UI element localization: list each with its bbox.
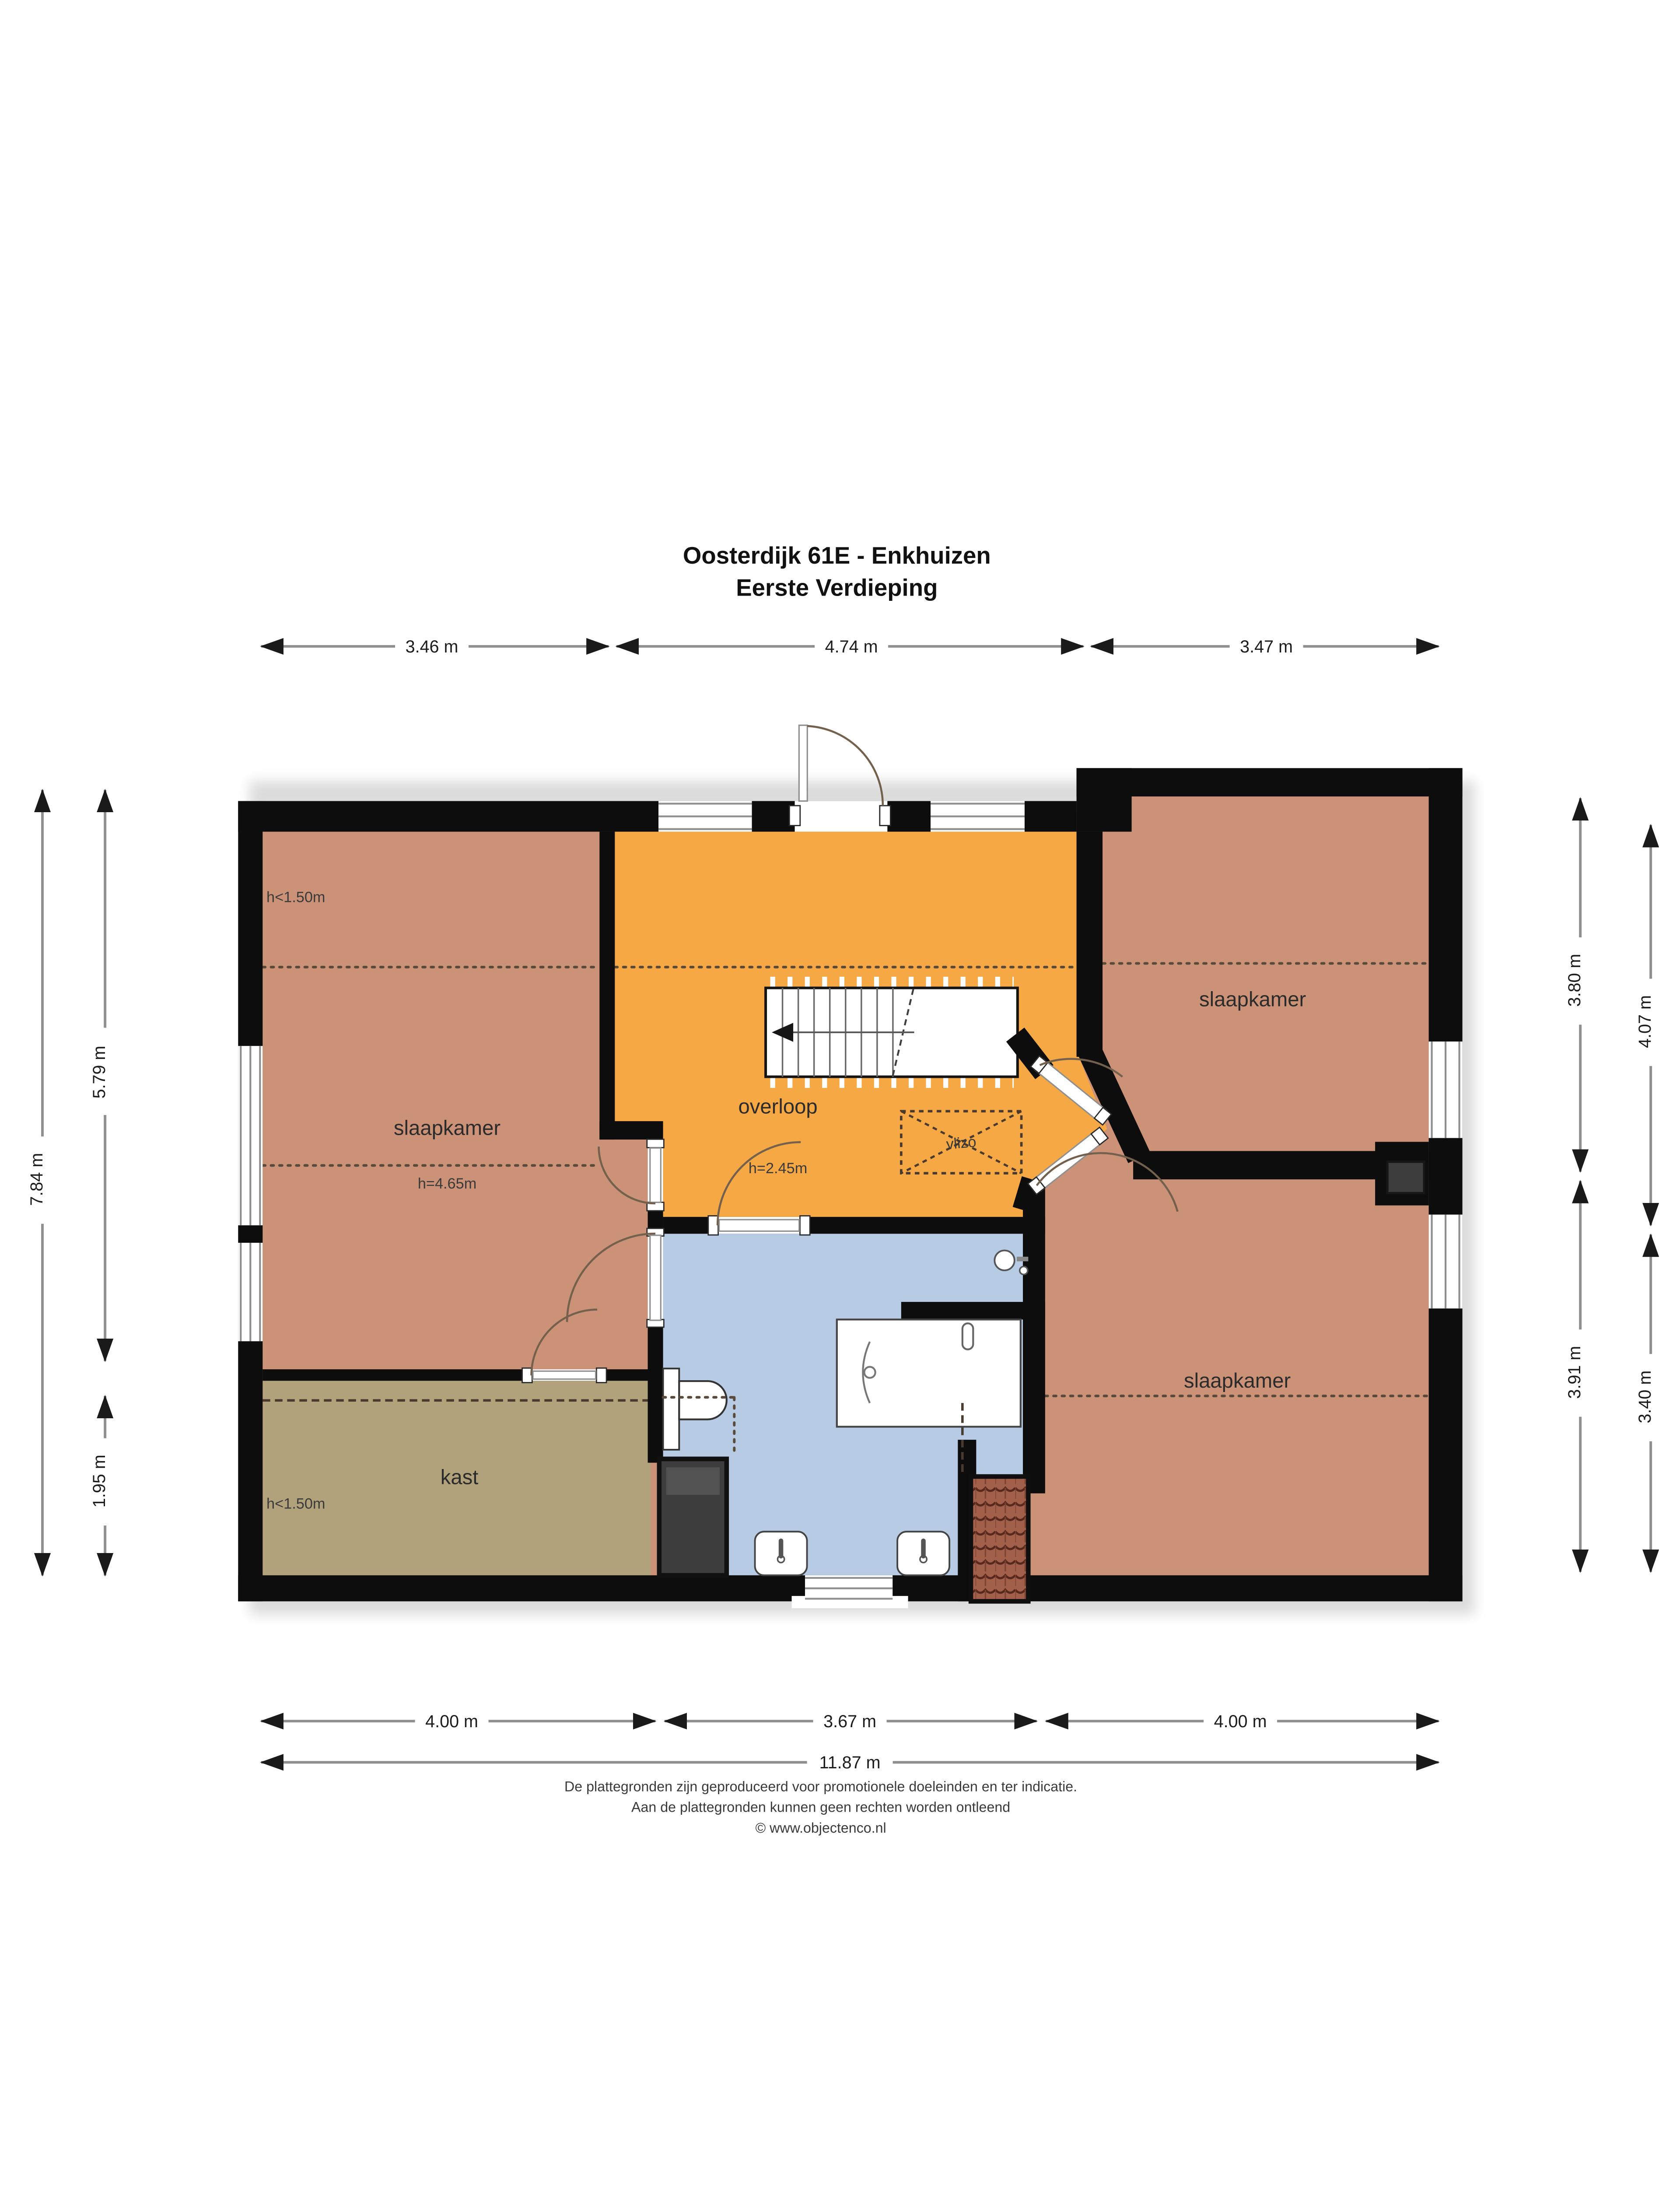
wall-step: [599, 1121, 663, 1140]
dim-bottom-2: 3.67 m: [823, 1712, 876, 1731]
landing-label: overloop: [738, 1095, 817, 1119]
staircase: [766, 982, 1018, 1082]
window-right-2: [1429, 1215, 1463, 1309]
window-top-1: [658, 801, 752, 832]
window-top-2: [931, 801, 1025, 832]
plan-title: Oosterdijk 61E - Enkhuizen Eerste Verdie…: [683, 542, 991, 601]
shaft-inner: [666, 1467, 720, 1495]
window-left-2: [238, 1243, 262, 1341]
wall-top-right: [1077, 768, 1463, 796]
dim-top-3: 3.47 m: [1240, 637, 1293, 656]
dim-bottom-total: 11.87 m: [819, 1753, 881, 1772]
footer-line1: De plattegronden zijn geproduceerd voor …: [564, 1778, 1077, 1794]
landing-height: h=2.45m: [749, 1160, 807, 1177]
dim-bottom-1: 4.00 m: [425, 1712, 478, 1731]
loft-hatch-label: vlizo: [945, 1133, 977, 1153]
bedroom-left-label: slaapkamer: [394, 1117, 500, 1140]
dim-top-1: 3.46 m: [406, 637, 458, 656]
dim-right-outer-2: 3.40 m: [1635, 1371, 1655, 1424]
basin-knob: [1020, 1266, 1028, 1274]
bedroom-left-low: h<1.50m: [266, 889, 325, 906]
flue-box: [1387, 1162, 1424, 1193]
closet-label: kast: [441, 1466, 479, 1489]
basin-faucet: [1017, 1257, 1028, 1262]
dim-left-inner-2: 1.95 m: [90, 1455, 109, 1508]
window-left-1: [238, 1046, 262, 1225]
dim-left-inner-1: 5.79 m: [90, 1046, 109, 1099]
wall-bath-stub: [901, 1302, 1045, 1319]
toilet-tank: [663, 1368, 679, 1450]
bedroom-topright-label: slaapkamer: [1199, 988, 1306, 1011]
toilet-bowl: [679, 1381, 727, 1420]
sink-right: [897, 1532, 949, 1575]
wall-top-jog: [1077, 768, 1132, 831]
dim-top-2: 4.74 m: [825, 637, 878, 656]
dim-right-inner-1: 3.80 m: [1565, 954, 1584, 1007]
wall-bathroom-right: [1023, 1185, 1045, 1494]
title-line1: Oosterdijk 61E - Enkhuizen: [683, 542, 991, 569]
floorplan-svg: Oosterdijk 61E - Enkhuizen Eerste Verdie…: [0, 0, 1680, 2188]
dim-right-inner-2: 3.91 m: [1565, 1346, 1584, 1399]
footer-line3: © www.objectenco.nl: [755, 1820, 886, 1836]
footer-line2: Aan de plattegronden kunnen geen rechten…: [631, 1799, 1010, 1815]
shaft: [659, 1459, 727, 1575]
footer: De plattegronden zijn geproduceerd voor …: [564, 1778, 1077, 1836]
bathtub: [837, 1319, 1021, 1427]
dim-left-outer: 7.84 m: [27, 1153, 46, 1206]
dim-bottom-3: 4.00 m: [1214, 1712, 1267, 1731]
door-top-exterior: [789, 725, 890, 831]
chimney: [971, 1476, 1028, 1601]
wall-bedroom-topright-left: [1077, 832, 1103, 1057]
bedroom-left-height: h=4.65m: [418, 1175, 476, 1192]
window-right-1: [1429, 1041, 1463, 1138]
floorplan-page: Oosterdijk 61E - Enkhuizen Eerste Verdie…: [0, 0, 1680, 2188]
closet-low: h<1.50m: [266, 1496, 325, 1512]
wall-right: [1429, 768, 1463, 1601]
bedroom-bottomright-label: slaapkamer: [1184, 1369, 1291, 1392]
sink-left: [755, 1532, 807, 1575]
dim-right-outer-1: 4.07 m: [1635, 995, 1655, 1048]
title-line2: Eerste Verdieping: [736, 575, 938, 601]
wall-bedroom-left-upper: [599, 832, 615, 1140]
window-bottom: [792, 1575, 908, 1608]
